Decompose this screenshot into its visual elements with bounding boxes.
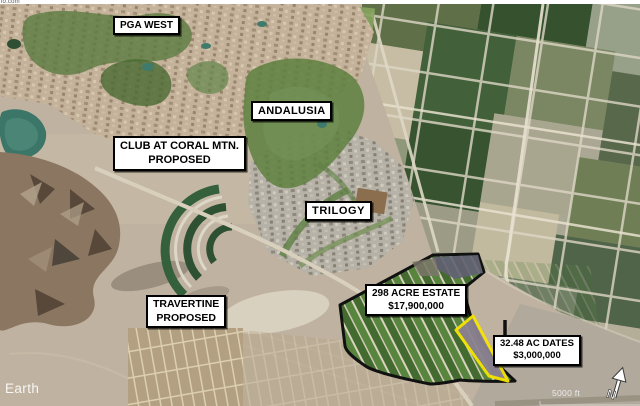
- label-title: TRILOGY: [312, 204, 365, 218]
- label-travertine: TRAVERTINE PROPOSED: [146, 295, 226, 328]
- earth-watermark: Earth: [5, 381, 39, 396]
- label-subtitle: PROPOSED: [153, 312, 219, 326]
- label-32-48-ac-dates: 32.48 AC DATES $3,000,000: [493, 335, 581, 366]
- label-pga-west: PGA WEST: [113, 16, 180, 35]
- label-title: ANDALUSIA: [258, 104, 325, 118]
- label-title: PGA WEST: [120, 19, 173, 32]
- label-298-acre-estate: 298 ACRE ESTATE $17,900,000: [365, 284, 467, 316]
- scale-label: 5000 ft: [552, 388, 580, 398]
- label-andalusia: ANDALUSIA: [251, 101, 332, 121]
- label-title: 32.48 AC DATES: [500, 338, 574, 350]
- label-title: CLUB AT CORAL MTN.: [120, 139, 239, 153]
- site-watermark-text: io.com: [1, 0, 20, 5]
- label-price: $3,000,000: [500, 350, 574, 362]
- label-trilogy: TRILOGY: [305, 201, 372, 221]
- screenshot-root: io.com: [0, 0, 640, 406]
- label-subtitle: PROPOSED: [120, 153, 239, 167]
- label-price: $17,900,000: [372, 300, 460, 313]
- label-club-at-coral-mtn: CLUB AT CORAL MTN. PROPOSED: [113, 136, 246, 171]
- label-title: TRAVERTINE: [153, 298, 219, 312]
- label-title: 298 ACRE ESTATE: [372, 287, 460, 300]
